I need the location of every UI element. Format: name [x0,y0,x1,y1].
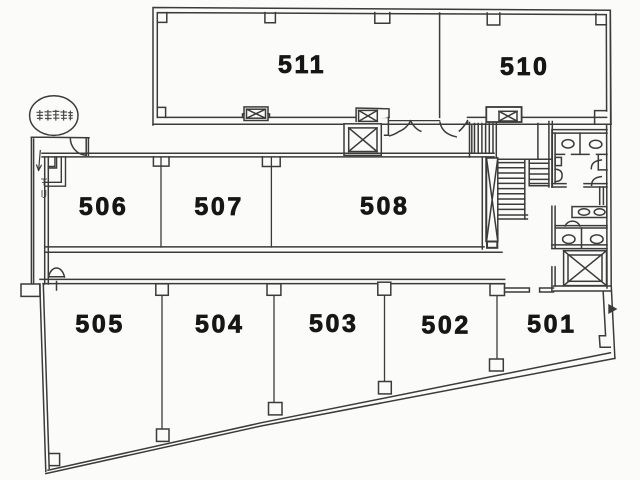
svg-text:508: 508 [360,193,410,221]
svg-text:511: 511 [278,51,326,79]
svg-text:501: 501 [527,310,577,338]
svg-text:503: 503 [309,310,359,338]
svg-text:507: 507 [194,193,244,221]
svg-text:502: 502 [421,311,471,339]
svg-text:505: 505 [75,310,125,338]
svg-text:510: 510 [500,53,550,81]
svg-text:506: 506 [79,193,129,221]
svg-text:504: 504 [195,310,245,338]
